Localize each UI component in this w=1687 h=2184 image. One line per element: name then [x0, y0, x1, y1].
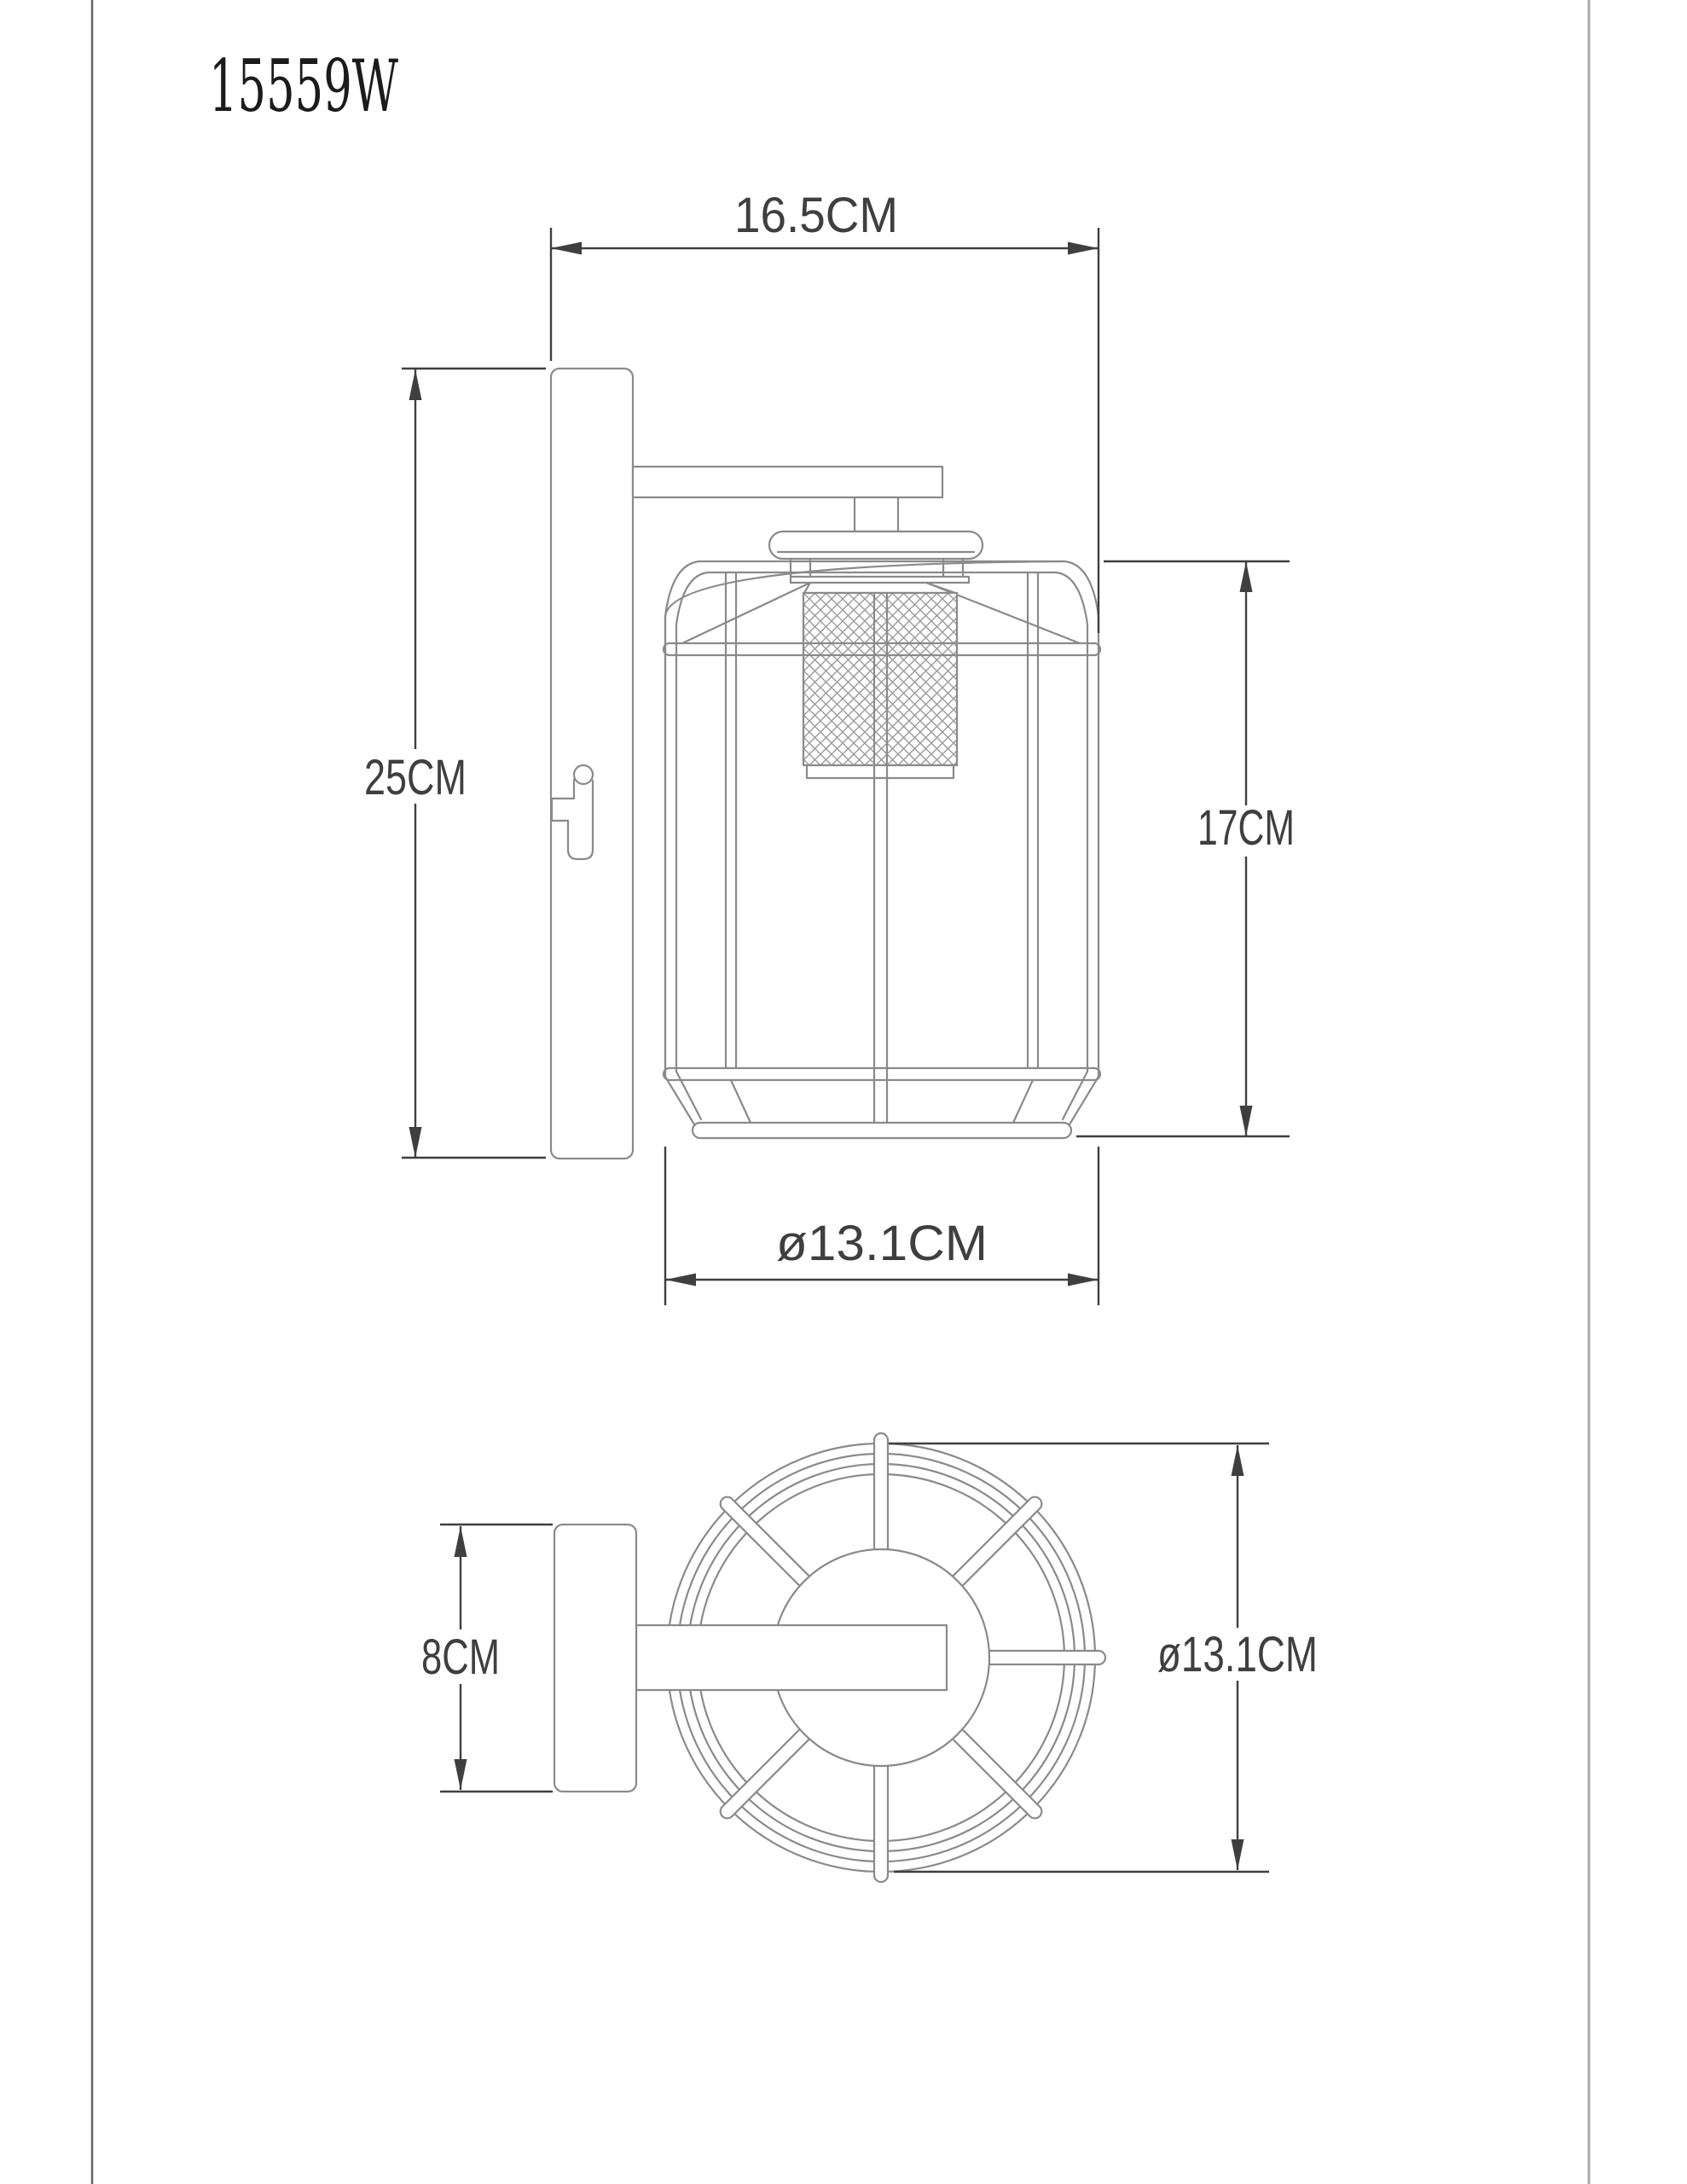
- dimension-label-total-depth: 16.5CM: [734, 188, 898, 243]
- dimension-backplate-height: 25CM: [362, 369, 546, 1158]
- dimension-backplate-width: 8CM: [415, 1525, 553, 1792]
- dimension-cage-diameter-side: ø13.1CM: [665, 1147, 1099, 1305]
- drawing-canvas: 15559W: [0, 0, 1687, 2184]
- side-view-drawing: 16.5CM 25CM 17CM: [362, 188, 1299, 1305]
- mounting-arm-top: [636, 1625, 947, 1690]
- mesh-cylinder: [803, 593, 957, 778]
- product-code-title: 15559W: [209, 44, 398, 128]
- dimension-label-backplate-width: 8CM: [421, 1629, 500, 1685]
- cage-bottom-rim: [693, 1123, 1071, 1138]
- canopy-disc: [769, 531, 983, 559]
- lampholder-collar: [791, 577, 969, 593]
- cage-bottom: [665, 1072, 1099, 1138]
- wall-backplate-side: [551, 369, 633, 1159]
- mesh-bottom-cap: [807, 765, 954, 778]
- cage-lower-ring: [664, 1068, 1100, 1080]
- top-view-drawing: 8CM ø13.1CM: [415, 1433, 1324, 1882]
- dimension-label-backplate-height: 25CM: [364, 750, 467, 805]
- dimension-label-cage-height: 17CM: [1197, 800, 1295, 856]
- dimension-cage-height: 17CM: [1076, 561, 1299, 1136]
- dimension-label-cage-diameter-side: ø13.1CM: [776, 1216, 988, 1271]
- wall-backplate-top: [554, 1525, 636, 1792]
- technical-drawing-page: 15559W: [0, 0, 1687, 2184]
- dimension-label-cage-diameter-top: ø13.1CM: [1157, 1627, 1318, 1682]
- mounting-arm-side: [633, 467, 942, 497]
- stem-side: [855, 497, 898, 531]
